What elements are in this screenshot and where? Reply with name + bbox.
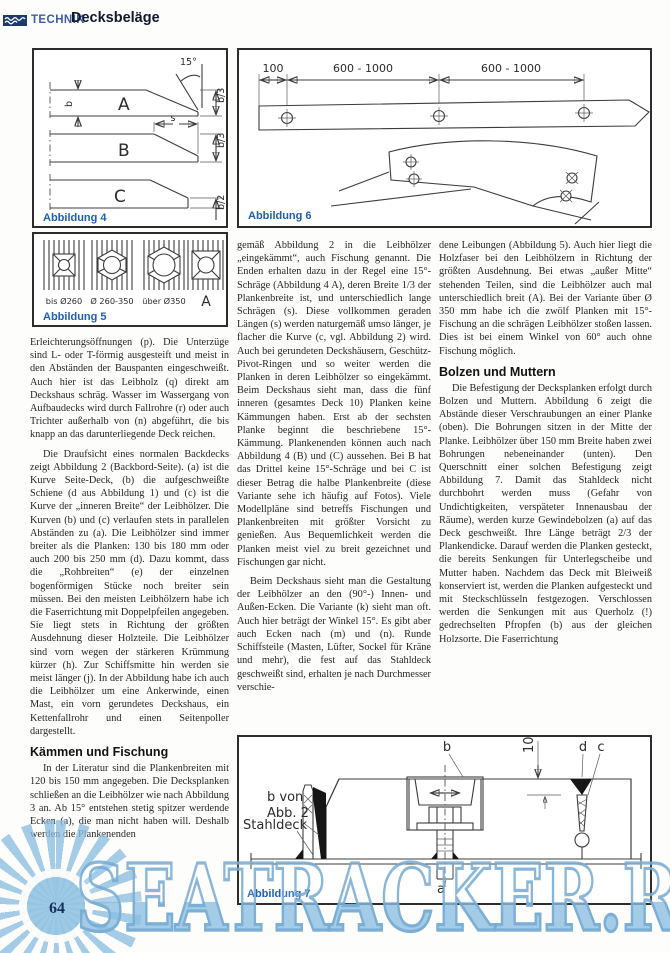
fig5-label-1: bis Ø260 <box>46 296 82 306</box>
fig7-drawing: b 10 d c b von Abb. 2 Stahldeck a Abbild… <box>239 737 650 903</box>
fig5-label-3: über Ø350 <box>142 296 185 306</box>
fig7-label-stahldeck: Stahldeck <box>243 818 308 833</box>
paragraph: Beim Deckshaus sieht man die Gestaltung … <box>237 575 431 694</box>
fig5-label-2: Ø 260-350 <box>90 296 133 306</box>
fig4-dim-b3-mid: b/3 <box>216 133 226 148</box>
fig6-caption: Abbildung 6 <box>248 210 312 222</box>
fig5-caption: Abbildung 5 <box>43 311 107 323</box>
fig7-label-b-von: b von <box>267 790 303 805</box>
section-heading-bolzen: Bolzen und Muttern <box>439 365 652 379</box>
fig4-caption: Abbildung 4 <box>43 212 107 224</box>
paragraph: Die Befestigung der Decksplanken erfolgt… <box>439 382 652 646</box>
fig7-label-b: b <box>443 740 451 755</box>
fig7-label-c: c <box>597 740 604 755</box>
fig6-dim-600-1000-a: 600 - 1000 <box>333 62 393 75</box>
text-column-left: Erleichterungsöffnungen (p). Die Unterzü… <box>30 336 229 914</box>
figure-abbildung-6: 100 600 - 1000 600 - 1000 Abbildung 6 <box>237 48 652 228</box>
fig4-plank-c-label: C <box>114 187 126 207</box>
paragraph: Die Draufsicht eines normalen Backdecks … <box>30 448 229 738</box>
fig6-drawing: 100 600 - 1000 600 - 1000 Abbildung 6 <box>239 50 650 226</box>
wave-logo-icon <box>3 15 27 26</box>
fig4-plank-b-label: B <box>118 141 130 161</box>
fig4-dim-s: s <box>171 113 176 124</box>
paragraph: gemäß Abbildung 2 in die Leibhölzer „ein… <box>237 239 431 569</box>
section-heading-kaemmen: Kämmen und Fischung <box>30 745 229 759</box>
fig4-dim-b3-top: b/3 <box>216 88 226 103</box>
fig5-label-4: A <box>201 294 211 310</box>
page-header: TECHNIK Decksbeläge <box>0 12 670 34</box>
fig7-label-d: d <box>579 740 587 755</box>
fig4-drawing: b A 15° b/3 s B <box>34 50 226 226</box>
paragraph: Erleichterungsöffnungen (p). Die Unterzü… <box>30 336 229 442</box>
fig7-label-10: 10 <box>522 737 537 753</box>
figure-abbildung-7: b 10 d c b von Abb. 2 Stahldeck a Abbild… <box>237 735 652 905</box>
text-column-middle: gemäß Abbildung 2 in die Leibhölzer „ein… <box>237 239 431 733</box>
magazine-page: TECHNIK Decksbeläge b A 15° <box>0 0 670 953</box>
fig4-plank-a-label: A <box>118 95 130 115</box>
fig4-angle-label: 15° <box>180 57 197 68</box>
fig6-dim-100: 100 <box>263 62 284 75</box>
fig7-label-a: a <box>437 882 445 897</box>
fig5-drawing: bis Ø260 Ø 260-350 über Ø350 A Abbildung… <box>34 234 226 325</box>
fig7-caption: Abbildung 7 <box>247 888 311 900</box>
fig4-dim-b: b <box>64 101 75 107</box>
page-title: Decksbeläge <box>71 10 160 26</box>
paragraph: dene Leibungen (Abbildung 5). Auch hier … <box>439 239 652 358</box>
fig4-dim-b2: b/2 <box>216 195 226 210</box>
fig6-dim-600-1000-b: 600 - 1000 <box>481 62 541 75</box>
paragraph: In der Literatur sind die Plankenbreiten… <box>30 762 229 841</box>
figure-abbildung-4: b A 15° b/3 s B <box>32 48 228 228</box>
figure-abbildung-5: bis Ø260 Ø 260-350 über Ø350 A Abbildung… <box>32 232 228 327</box>
text-column-right: dene Leibungen (Abbildung 5). Auch hier … <box>439 239 652 733</box>
page-number: 64 <box>49 900 65 918</box>
